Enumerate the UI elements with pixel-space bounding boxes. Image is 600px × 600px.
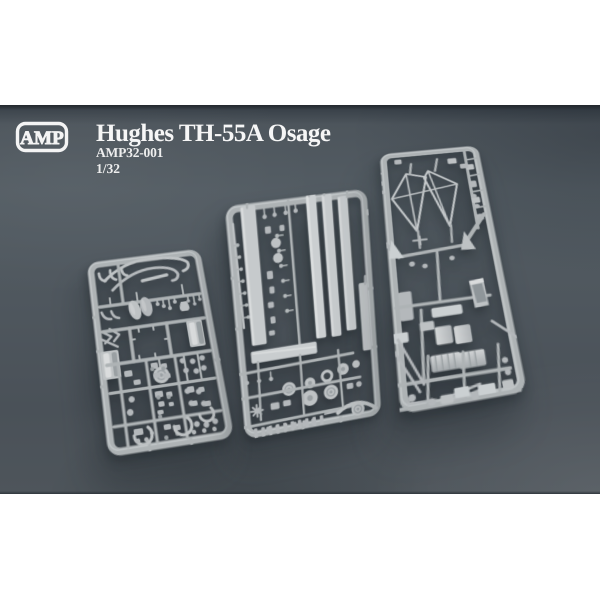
svg-text:AMP32-001: AMP32-001 (96, 145, 164, 160)
svg-text:1/32: 1/32 (96, 161, 120, 176)
svg-text:Hughes TH-55A Osage: Hughes TH-55A Osage (96, 120, 331, 147)
svg-text:AMP: AMP (20, 128, 64, 149)
